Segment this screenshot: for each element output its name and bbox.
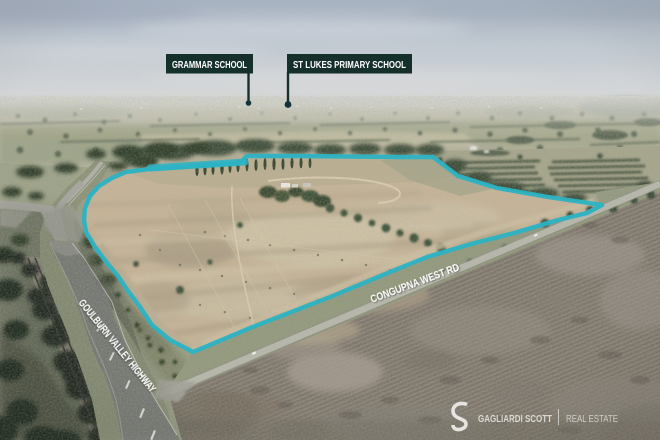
svg-text:ST LUKES PRIMARY SCHOOL: ST LUKES PRIMARY SCHOOL — [293, 59, 406, 71]
svg-text:GRAMMAR SCHOOL: GRAMMAR SCHOOL — [172, 59, 247, 71]
svg-text:GAGLIARDI SCOTT: GAGLIARDI SCOTT — [478, 413, 552, 425]
svg-text:REAL ESTATE: REAL ESTATE — [566, 413, 618, 425]
